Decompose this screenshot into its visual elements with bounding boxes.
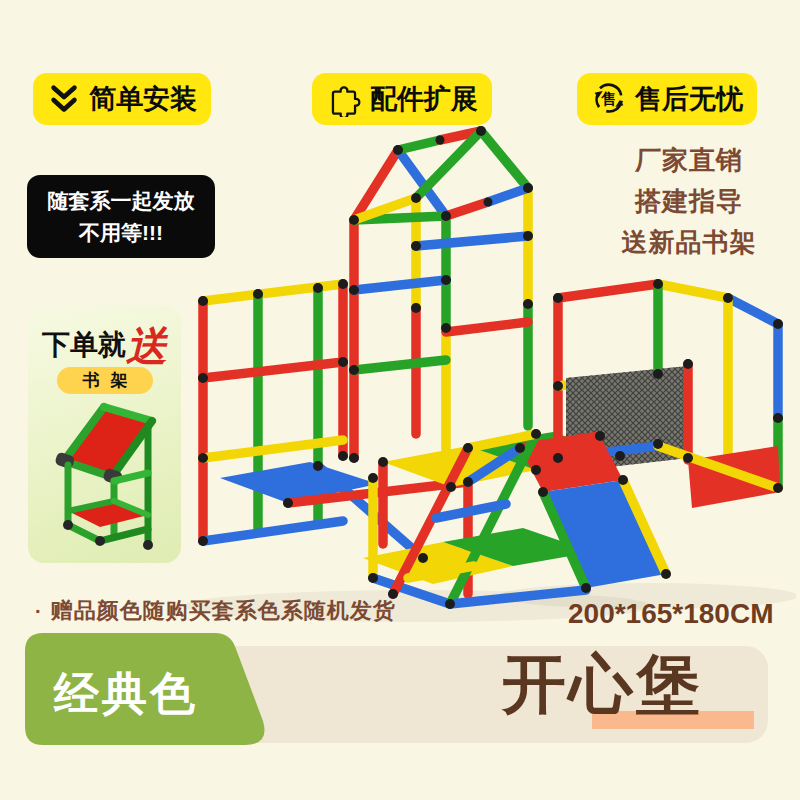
gift-title-prefix: 下单就 [42,329,126,360]
variant-label: 经典色 [34,664,218,724]
gift-color-footnote: ·赠品颜色随购买套系色系随机发货 [35,596,396,626]
bullet: · [35,600,43,622]
climbing-frame-illustration [168,126,796,630]
gift-tag: 书架 [57,367,153,394]
after-sales-icon-char: 售 [591,81,627,117]
badge-label: 配件扩展 [370,81,478,117]
badge-easy-install: 简单安装 [33,73,211,125]
after-sales-cycle-icon: 售 [591,81,627,117]
product-dimensions: 200*165*180CM [568,598,774,630]
gift-title: 下单就送 [28,319,181,374]
footnote-text: 赠品颜色随购买套系色系随机发货 [51,598,396,623]
badge-label: 售后无忧 [635,81,743,117]
badge-label: 简单安装 [89,81,197,117]
gift-promo-card: 下单就送 书架 [28,305,181,563]
badge-after-sales: 售 售后无忧 [577,73,757,125]
product-title: 开心堡 [502,651,703,718]
product-promo-image: 简单安装 配件扩展 售 售后无忧 随套系一起发放 不用等!!! 厂家直销 [0,0,800,800]
double-chevron-down-icon [47,82,81,116]
puzzle-icon [326,81,362,117]
badge-accessory-expand: 配件扩展 [312,73,492,125]
bookshelf-illustration [42,399,167,559]
gift-title-highlight: 送 [126,323,167,369]
